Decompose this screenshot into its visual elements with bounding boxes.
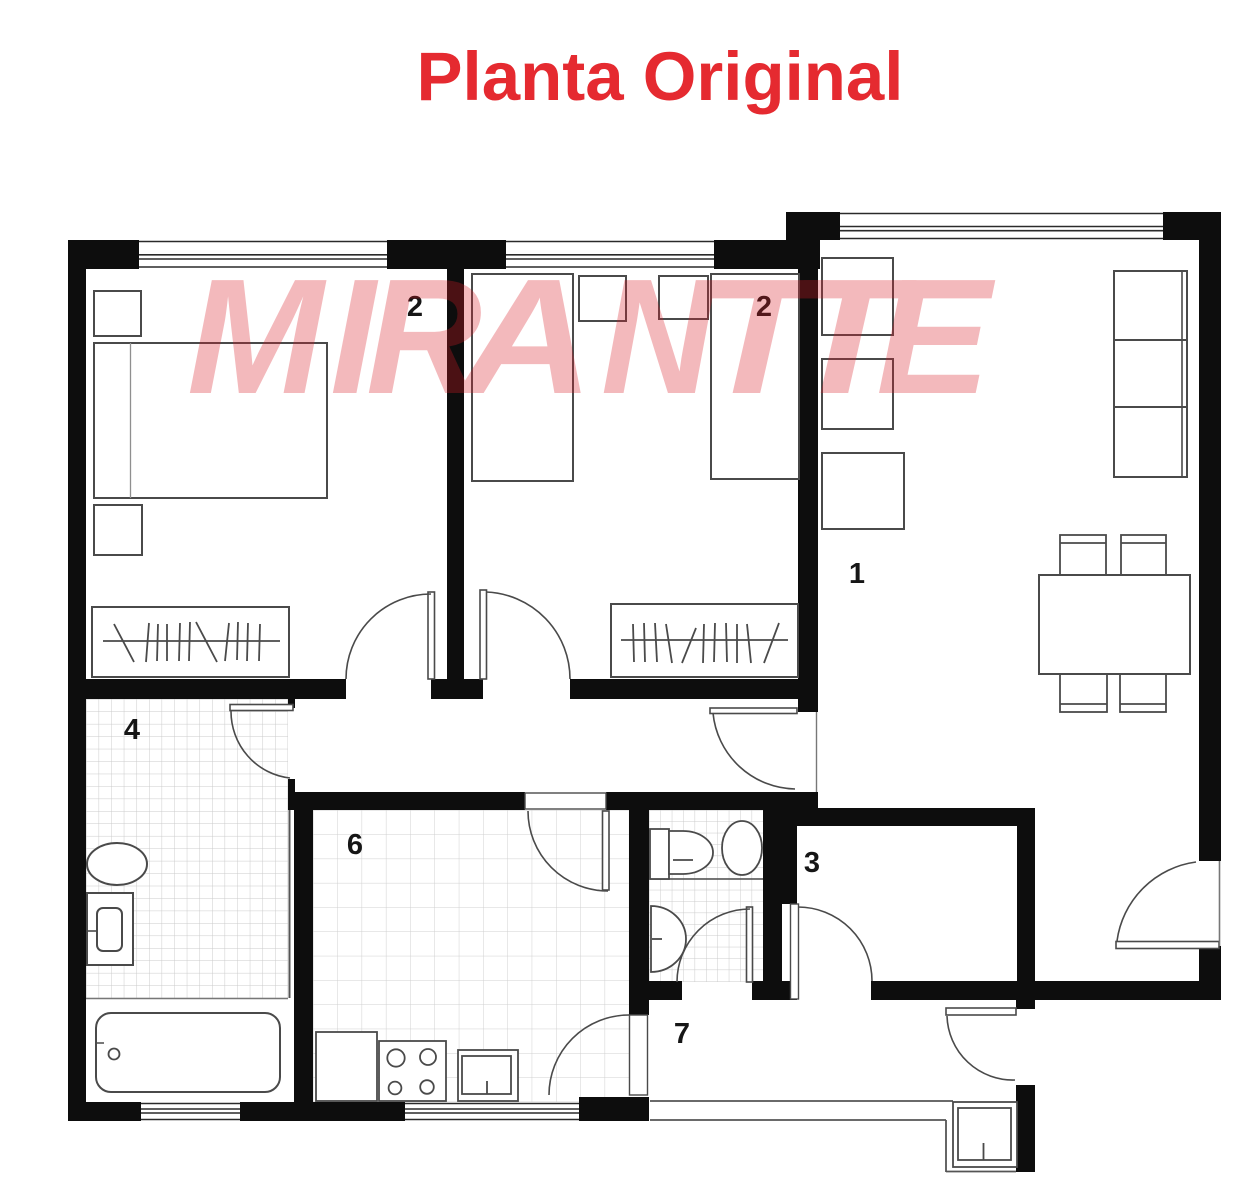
svg-text:4: 4	[124, 714, 140, 746]
svg-text:3: 3	[804, 847, 820, 879]
svg-text:MIRANTTE: MIRANTTE	[187, 245, 996, 428]
svg-text:6: 6	[347, 829, 363, 861]
svg-text:1: 1	[849, 558, 865, 590]
svg-text:Planta Original: Planta Original	[417, 38, 904, 115]
svg-text:7: 7	[674, 1018, 690, 1050]
